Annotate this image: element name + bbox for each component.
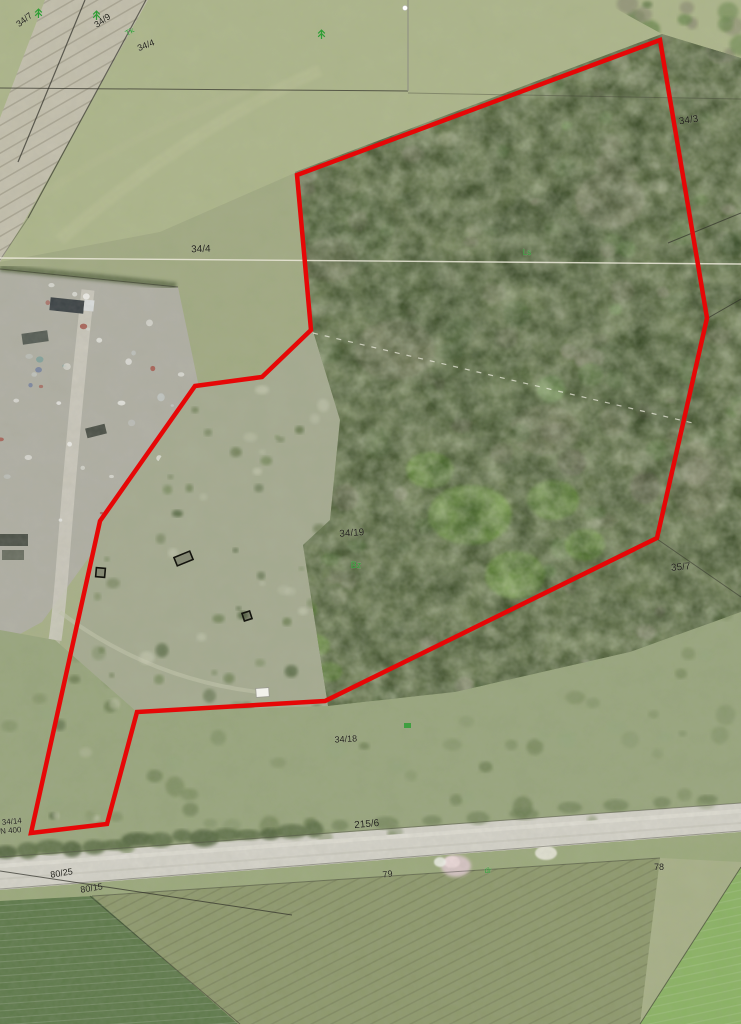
parcel-label-215-6: 215/6 <box>354 818 380 831</box>
landuse-label-ls: Ls <box>523 248 531 257</box>
parcel-label-78: 78 <box>654 862 664 872</box>
parcel-label-34-19: 34/19 <box>339 527 365 540</box>
parcel-label-34-18: 34/18 <box>334 733 357 744</box>
white-structure <box>256 688 270 698</box>
building-symbol <box>96 568 106 578</box>
aerial-cadastral-map[interactable]: 34/734/934/434/434/334/1935/734/18215/63… <box>0 0 741 1024</box>
map-canvas: 34/734/934/434/434/334/1935/734/18215/63… <box>0 0 741 1024</box>
landuse-label-dr: dr <box>484 866 491 875</box>
building-symbol <box>242 611 252 621</box>
parcel-label-n-400: N 400 <box>0 825 22 836</box>
grain-light <box>0 0 741 1024</box>
green-landuse-mark <box>404 723 411 728</box>
parcel-label-79: 79 <box>382 868 393 879</box>
survey-point <box>403 6 408 11</box>
parcel-label-34-4: 34/4 <box>191 244 211 256</box>
landuse-label-bz: Bz <box>351 560 362 570</box>
parcel-label-35-7: 35/7 <box>671 561 692 574</box>
